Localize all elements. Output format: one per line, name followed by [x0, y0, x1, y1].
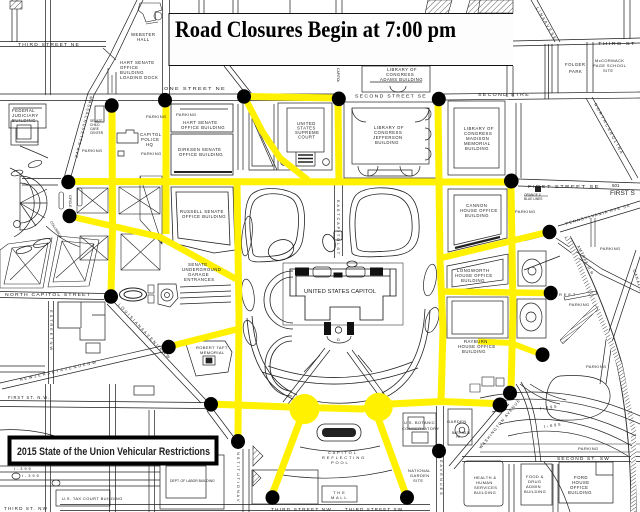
svg-text:THIRD STREET SW: THIRD STREET SW: [345, 507, 403, 512]
svg-text:CAPITOL: CAPITOL: [336, 68, 340, 83]
svg-text:BUILDING: BUILDING: [461, 278, 485, 283]
svg-text:SITE: SITE: [413, 478, 424, 483]
svg-text:PARKING: PARKING: [141, 151, 162, 156]
svg-text:BUILDING: BUILDING: [474, 490, 496, 495]
svg-text:GARDEN: GARDEN: [447, 419, 467, 424]
svg-text:BUILDING: BUILDING: [465, 213, 489, 218]
svg-text:PARKING: PARKING: [515, 209, 536, 214]
svg-text:BUILDING: BUILDING: [12, 118, 36, 123]
svg-text:BUILDING: BUILDING: [462, 349, 486, 354]
svg-text:SECOND ST. SW: SECOND ST. SW: [557, 456, 610, 461]
svg-text:FIRST ST. N.W.: FIRST ST. N.W.: [8, 395, 50, 400]
svg-text:D: D: [337, 337, 340, 342]
svg-text:ONE STREET NE: ONE STREET NE: [164, 86, 226, 91]
svg-text:PARKING: PARKING: [146, 114, 167, 119]
svg-text:PARKING: PARKING: [176, 112, 197, 117]
svg-text:NORTH CAPITOL STREET: NORTH CAPITOL STREET: [5, 292, 91, 297]
svg-text:SITE: SITE: [603, 68, 614, 73]
svg-text:HALL: HALL: [137, 37, 150, 42]
svg-text:PARKING: PARKING: [586, 364, 607, 369]
svg-text:BLUE LINES: BLUE LINES: [524, 197, 542, 201]
svg-text:CIRCLE: CIRCLE: [68, 195, 72, 208]
svg-text:E A V E N U E S: E A V E N U E S: [439, 460, 444, 495]
svg-text:I - 3 9 5: I - 3 9 5: [14, 466, 32, 471]
svg-text:I - 3 9 5: I - 3 9 5: [22, 473, 40, 478]
svg-text:THIRD ST. NW: THIRD ST. NW: [4, 506, 48, 511]
svg-text:BARTHOLDI: BARTHOLDI: [452, 431, 470, 435]
svg-text:COURT: COURT: [298, 135, 315, 140]
svg-text:SECOND STRE: SECOND STRE: [478, 92, 530, 97]
svg-text:PARK: PARK: [569, 69, 582, 74]
svg-text:FIRST STREET SE: FIRST STREET SE: [528, 184, 600, 189]
svg-text:PARKING: PARKING: [569, 302, 590, 307]
svg-text:DEPT. OF LABOR BUILDING: DEPT. OF LABOR BUILDING: [170, 479, 215, 483]
svg-text:CONSERVATORY: CONSERVATORY: [402, 426, 440, 431]
svg-text:ADAMS BUILDING: ADAMS BUILDING: [380, 77, 423, 82]
svg-text:UNITED STATES CAPITOL: UNITED STATES CAPITOL: [304, 289, 376, 295]
svg-text:OFFICE BUILDING: OFFICE BUILDING: [179, 152, 223, 157]
svg-text:THIRD STREET NE: THIRD STREET NE: [18, 42, 80, 47]
svg-text:FIRST S: FIRST S: [610, 190, 635, 197]
svg-text:FOLGER: FOLGER: [565, 62, 585, 67]
svg-text:U.S. TAX COURT BUILDING: U.S. TAX COURT BUILDING: [62, 496, 123, 501]
svg-text:2015 State of the Union Vehicu: 2015 State of the Union Vehicular Restri…: [17, 446, 210, 458]
svg-text:BUILDING: BUILDING: [524, 489, 546, 494]
svg-text:OFFICE BUILDING: OFFICE BUILDING: [182, 214, 226, 219]
svg-text:SECOND STREET SE: SECOND STREET SE: [355, 94, 427, 99]
svg-text:U.S. BOTANIC: U.S. BOTANIC: [404, 420, 435, 425]
svg-text:Road Closures Begin at 7:00 pm: Road Closures Begin at 7:00 pm: [175, 17, 456, 43]
svg-text:BUILDING: BUILDING: [375, 140, 399, 145]
svg-text:THIRD STREET NW: THIRD STREET NW: [271, 507, 332, 512]
svg-text:601: 601: [612, 183, 620, 188]
svg-text:E S T R E E T N W: E S T R E E T N W: [49, 310, 54, 351]
svg-text:PARKING: PARKING: [82, 148, 103, 153]
svg-text:OFFICE BUILDING: OFFICE BUILDING: [181, 125, 225, 130]
svg-text:ENTRANCES: ENTRANCES: [184, 277, 215, 282]
svg-text:M A L L: M A L L: [331, 495, 347, 500]
svg-text:BUILDING: BUILDING: [568, 490, 592, 495]
svg-text:N S T I T U T I O N A V: N S T I T U T I O N A V: [236, 452, 241, 502]
svg-text:LOADING DOCK: LOADING DOCK: [120, 75, 158, 80]
svg-text:PARKING: PARKING: [578, 446, 599, 451]
svg-text:MEMORIAL: MEMORIAL: [200, 350, 225, 355]
svg-text:THIRD ST: THIRD ST: [598, 41, 636, 46]
svg-text:P O O L: P O O L: [331, 460, 349, 465]
svg-text:HQ: HQ: [146, 142, 154, 147]
svg-text:BUILDING: BUILDING: [465, 146, 489, 151]
svg-text:CENTER: CENTER: [90, 131, 104, 135]
svg-text:PARKING: PARKING: [600, 246, 621, 251]
svg-text:E A S T C A P I T O L S T: E A S T C A P I T O L S T: [336, 200, 341, 255]
